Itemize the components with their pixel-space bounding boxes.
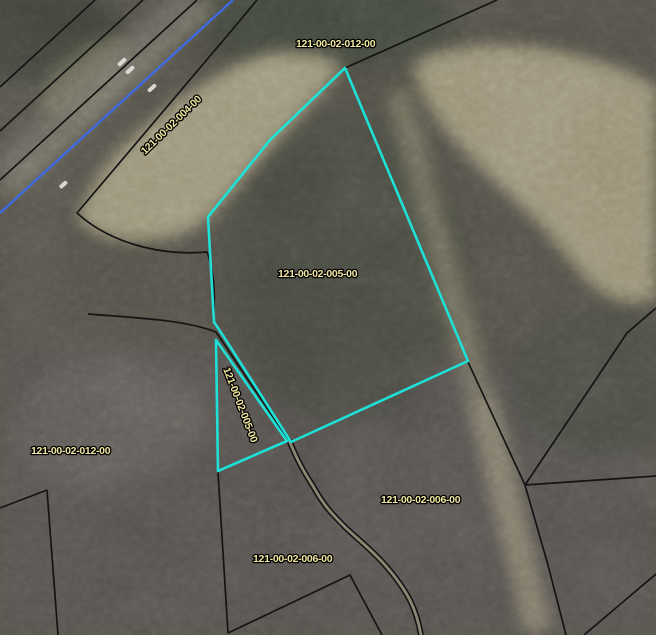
map-canvas[interactable]: 121-00-02-012-00 121-00-02-004-00 121-00…: [0, 0, 656, 635]
parcel-label-012-left: 121-00-02-012-00: [31, 445, 111, 457]
parcel-label-012-top: 121-00-02-012-00: [296, 38, 376, 50]
parcel-label-006-bottom: 121-00-02-006-00: [253, 553, 333, 565]
parcel-label-005-main: 121-00-02-005-00: [278, 268, 358, 280]
terrain-texture: [0, 0, 656, 635]
aerial-map: 121-00-02-012-00 121-00-02-004-00 121-00…: [0, 0, 656, 635]
parcel-label-006-right: 121-00-02-006-00: [381, 494, 461, 506]
